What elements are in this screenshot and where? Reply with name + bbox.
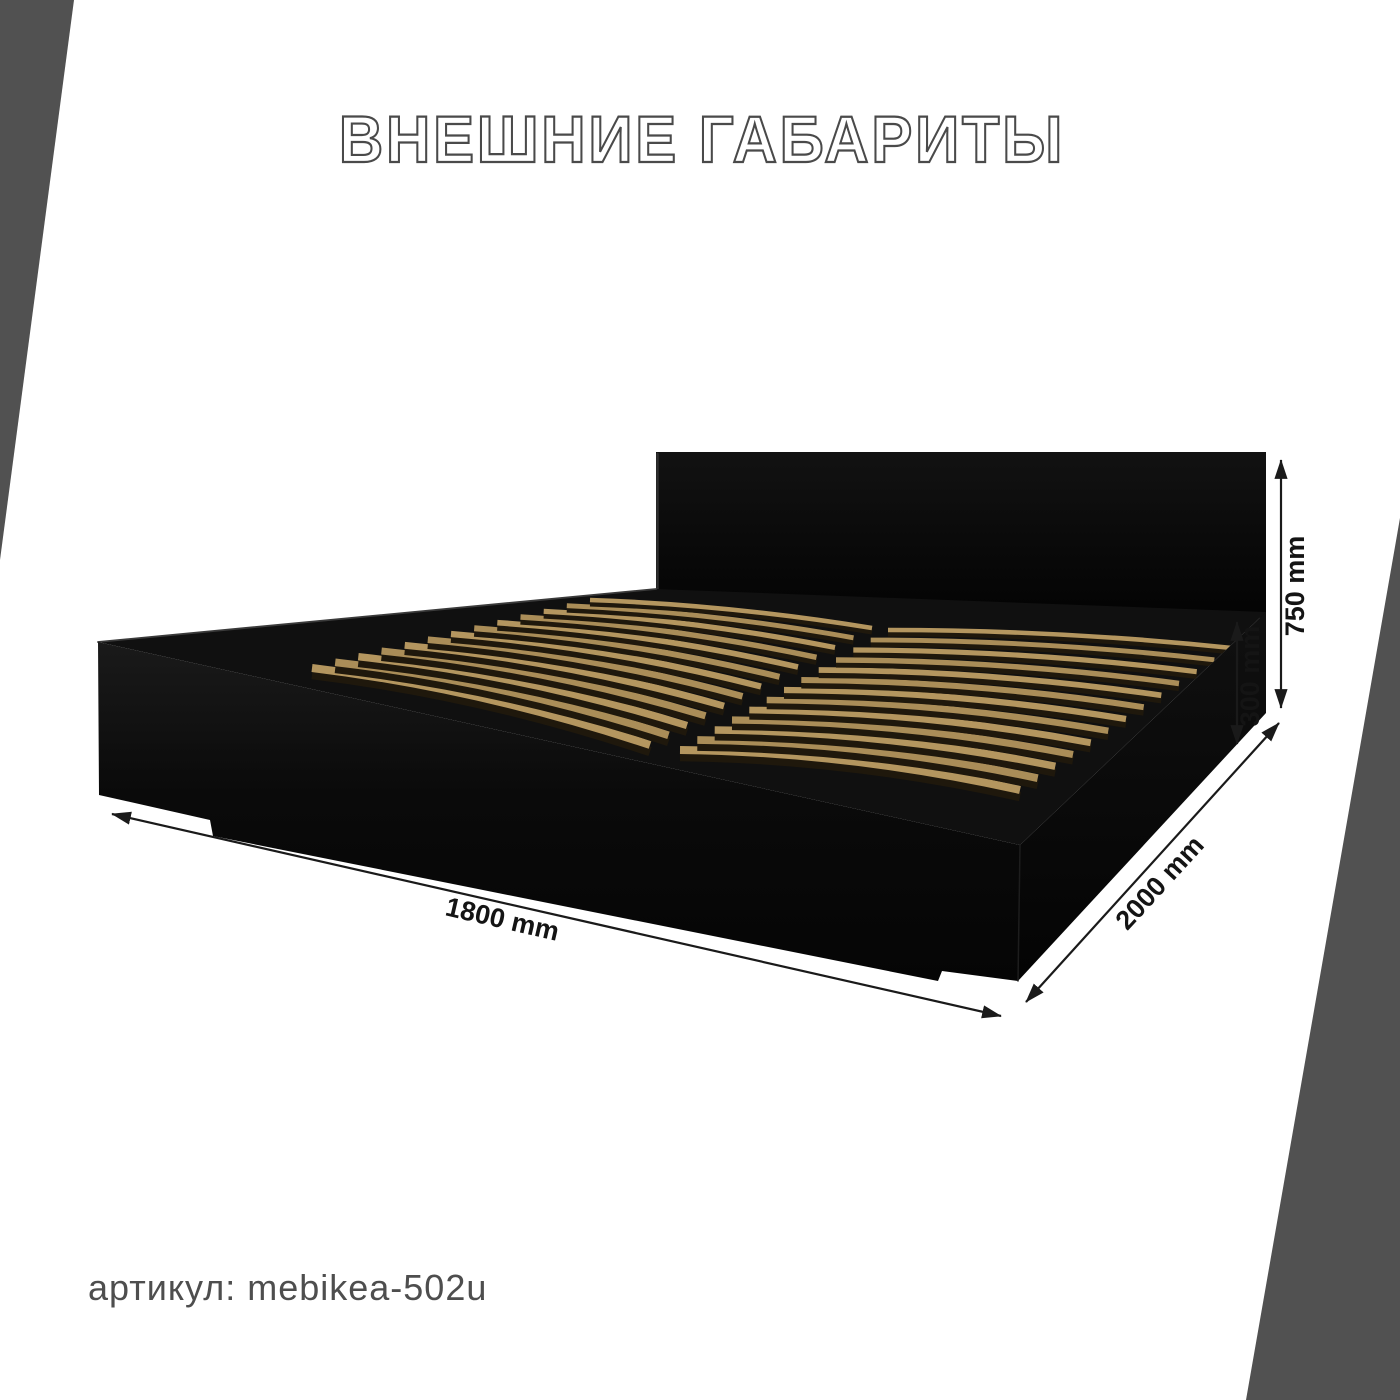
- page-title: ВНЕШНИЕ ГАБАРИТЫ: [339, 102, 1065, 177]
- page-title-text: ВНЕШНИЕ ГАБАРИТЫ: [339, 102, 1065, 177]
- product-dimensions-page: ВНЕШНИЕ ГАБАРИТЫ 1800 mm: [0, 0, 1400, 1400]
- base-height-dimension-label: 300 mm: [1235, 626, 1265, 727]
- dimension-base-height: 300 mm: [1235, 622, 1265, 744]
- bed-dimensions-illustration: ВНЕШНИЕ ГАБАРИТЫ 1800 mm: [0, 0, 1400, 1400]
- height-dimension-label: 750 mm: [1280, 536, 1310, 637]
- article-code: артикул: mebikea-502u: [88, 1267, 487, 1308]
